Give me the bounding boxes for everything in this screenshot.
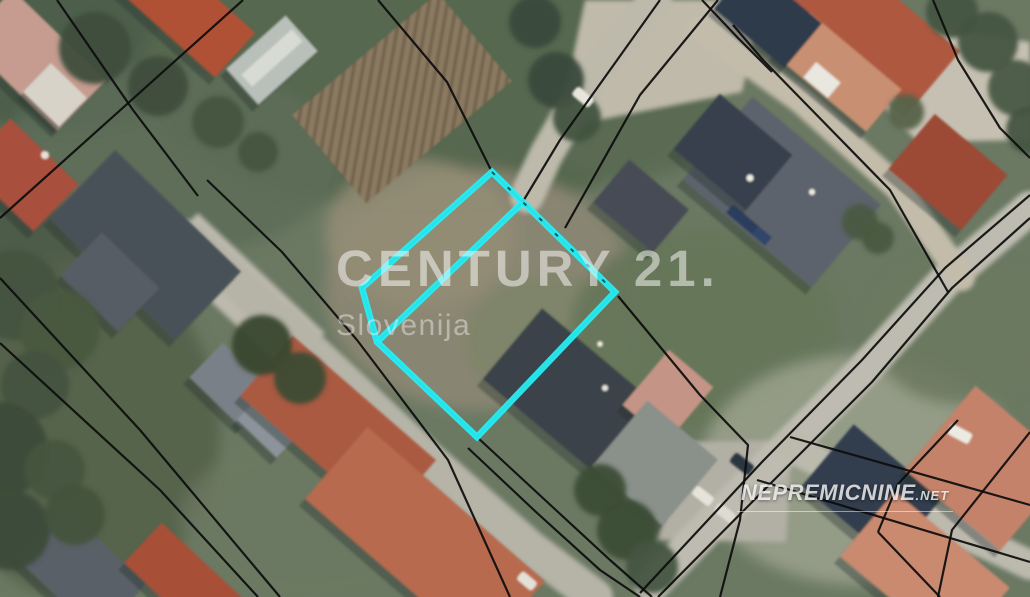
tree xyxy=(274,352,326,404)
tree xyxy=(59,12,131,84)
rooftop-dot xyxy=(809,189,815,195)
tree xyxy=(862,222,894,254)
tree xyxy=(192,96,244,148)
tree xyxy=(128,56,188,116)
rooftop-dot xyxy=(597,341,603,347)
rooftop-dot xyxy=(747,175,754,182)
satellite-map-view: CENTURY 21. Slovenija NEPREMICNINE.NET xyxy=(0,0,1030,597)
tree xyxy=(888,94,924,130)
rooftop-dot xyxy=(41,151,49,159)
tree xyxy=(45,485,105,545)
tree xyxy=(238,132,278,172)
rooftop-dot xyxy=(602,385,608,391)
aerial-photo xyxy=(0,0,1030,597)
